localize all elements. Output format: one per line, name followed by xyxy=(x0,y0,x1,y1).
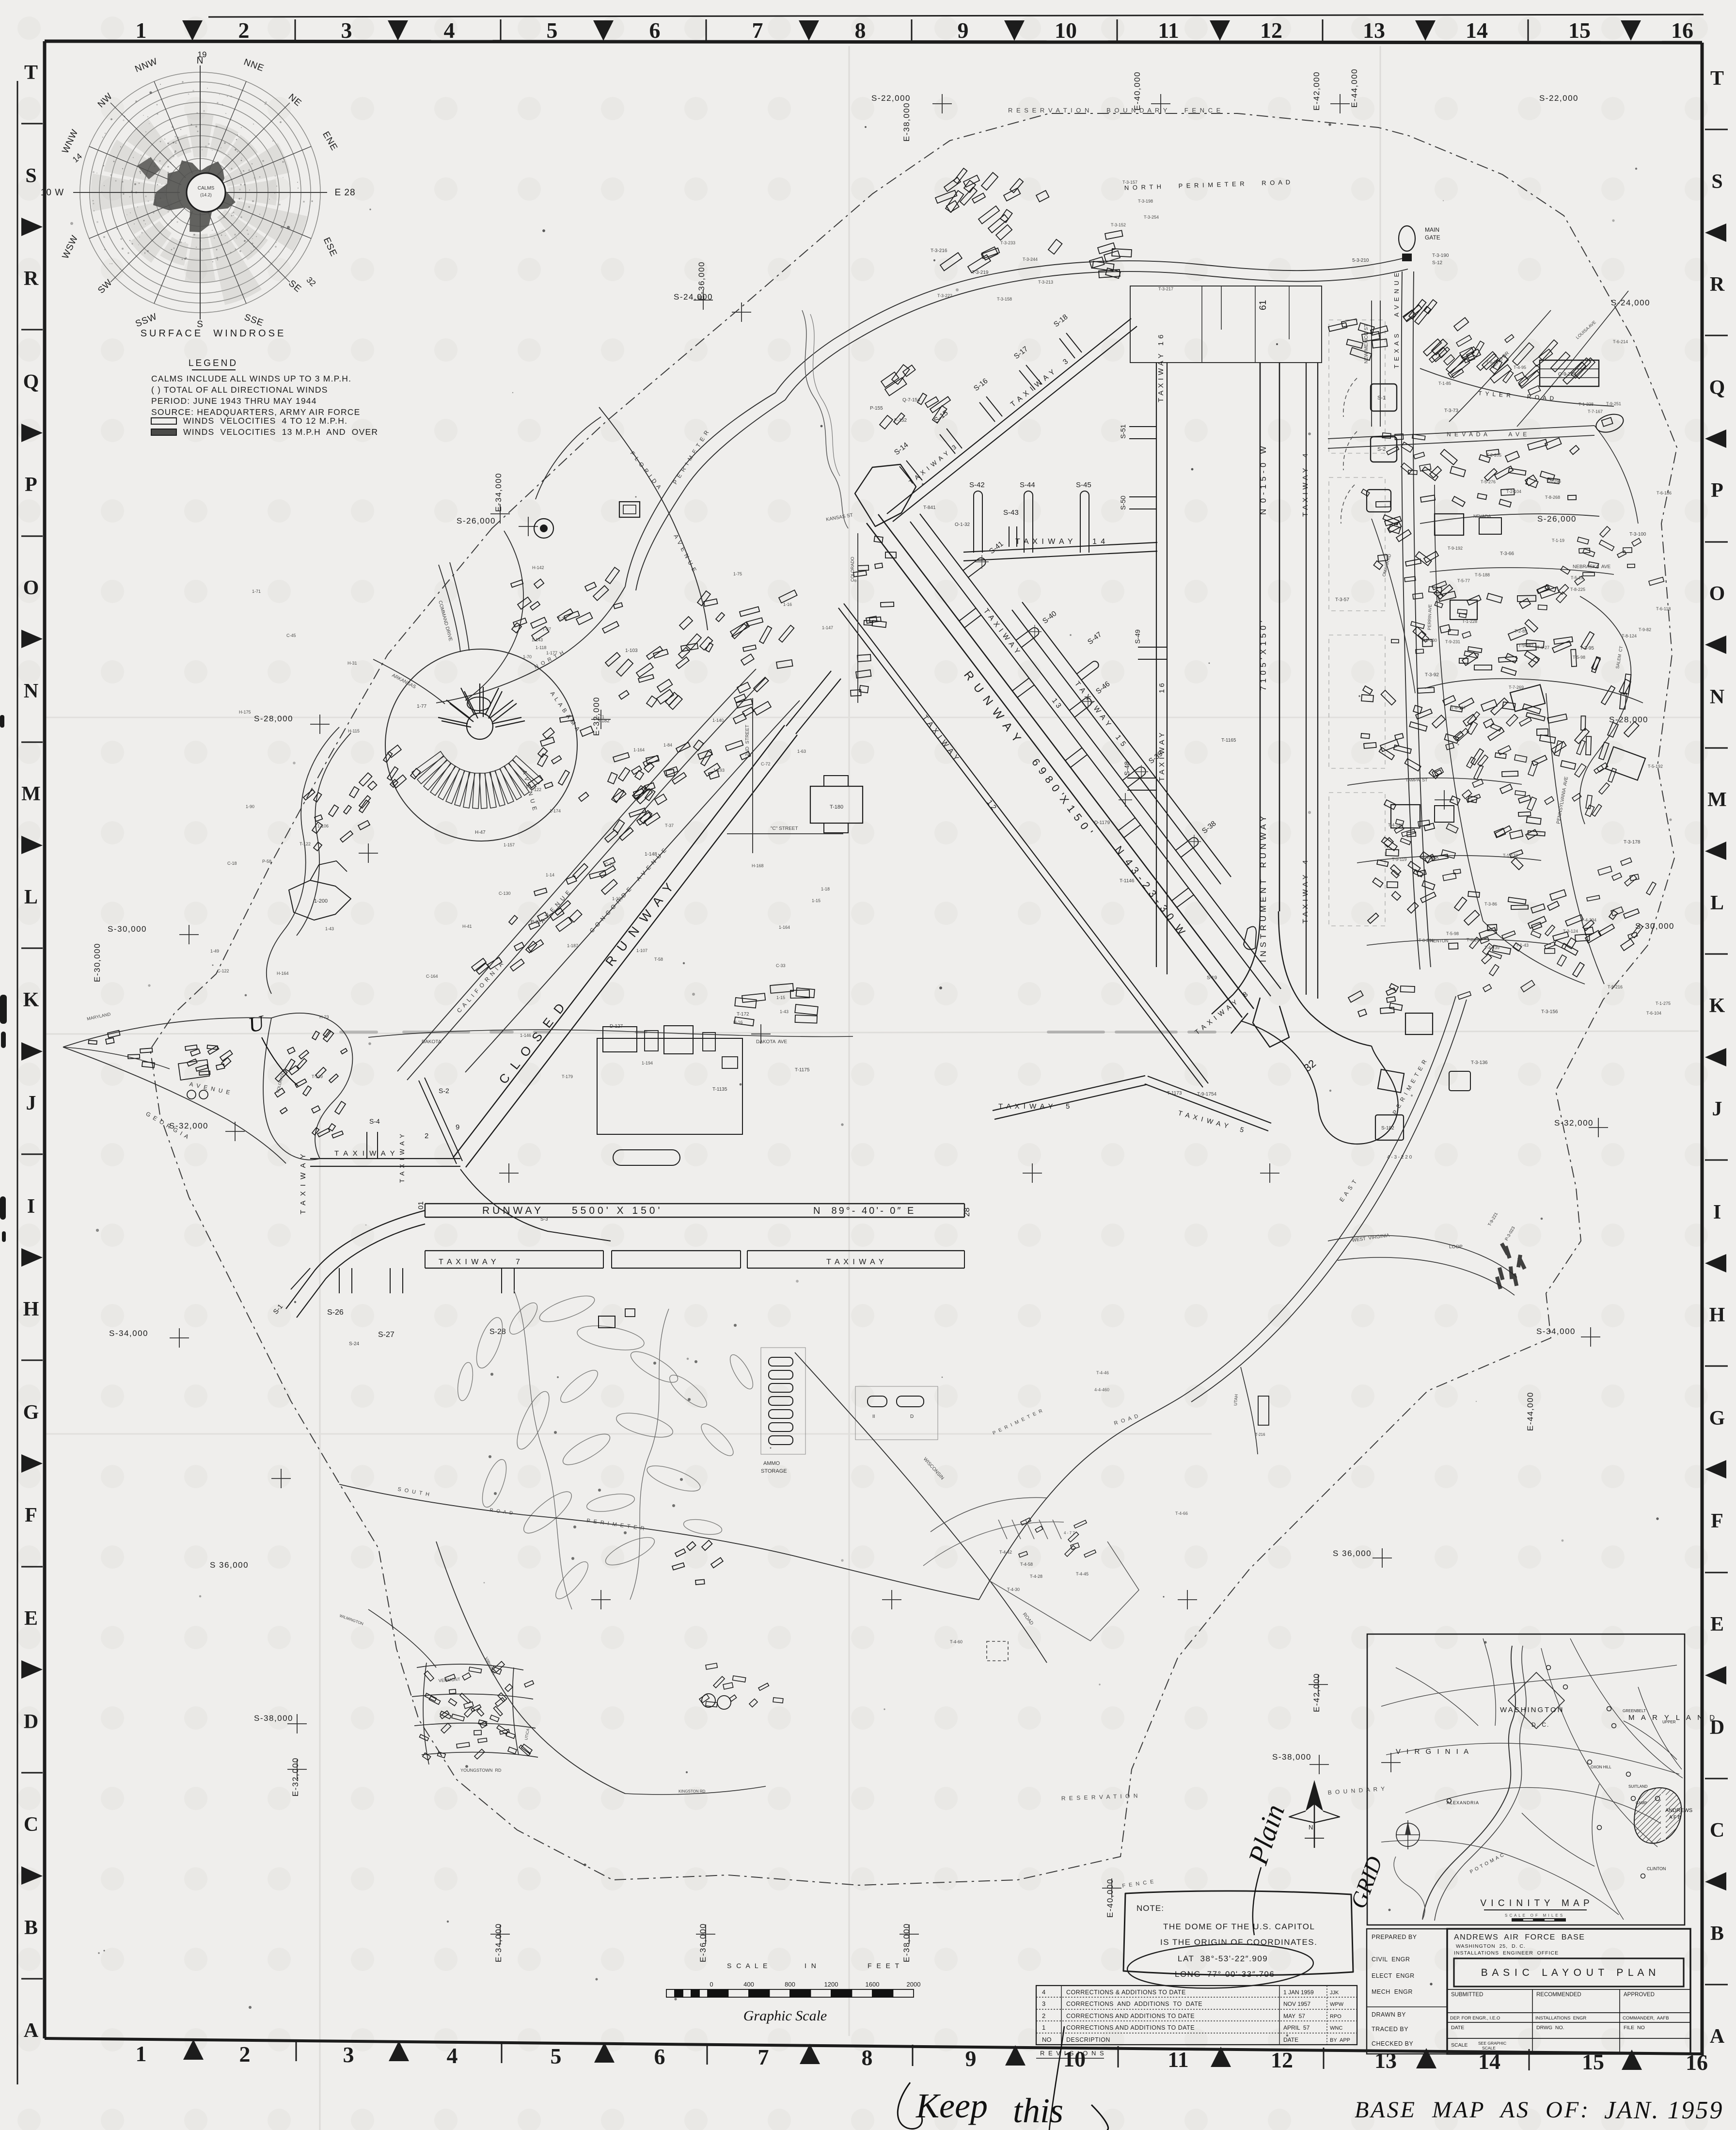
svg-text:T-74: T-74 xyxy=(557,617,567,622)
svg-text:H-41: H-41 xyxy=(462,924,472,929)
svg-text:11: 11 xyxy=(1158,18,1179,43)
svg-text:CORRECTIONS AND ADDITIONS T: CORRECTIONS AND ADDITIONS TO DATE xyxy=(1066,2001,1202,2007)
svg-text:H-115: H-115 xyxy=(348,729,360,733)
svg-text:T-4-60: T-4-60 xyxy=(950,1639,963,1644)
svg-text:T-3-100: T-3-100 xyxy=(1629,532,1646,537)
svg-text:14: 14 xyxy=(1478,2049,1500,2074)
svg-text:T-5-77: T-5-77 xyxy=(1457,578,1470,583)
svg-text:WINDS VELOCITIES 4 TO 12 M.P: WINDS VELOCITIES 4 TO 12 M.P.H. xyxy=(183,416,347,426)
svg-text:S-22,000: S-22,000 xyxy=(1539,94,1578,103)
svg-text:S-42: S-42 xyxy=(969,481,985,489)
svg-text:T-1173: T-1173 xyxy=(1167,1091,1182,1096)
svg-text:T-139: T-139 xyxy=(312,1074,323,1079)
svg-text:WNC: WNC xyxy=(1330,2025,1342,2031)
svg-text:JAN. 1959: JAN. 1959 xyxy=(1604,2097,1724,2124)
svg-text:S 36,000: S 36,000 xyxy=(210,1560,249,1570)
svg-text:S C A L E O F M I L E S: S C A L E O F M I L E S xyxy=(1505,1913,1563,1918)
svg-text:T A X I W A Y 4: T A X I W A Y 4 xyxy=(1301,453,1310,517)
svg-text:RUNWAY: RUNWAY xyxy=(482,1205,544,1216)
svg-text:INSTALLATIONS ENGINEER OFFIC: INSTALLATIONS ENGINEER OFFICE xyxy=(1454,1950,1559,1956)
svg-text:KINGSTON RD: KINGSTON RD xyxy=(679,1789,706,1794)
svg-text:E: E xyxy=(24,1607,38,1630)
svg-text:K: K xyxy=(23,989,39,1011)
svg-text:C-164: C-164 xyxy=(426,974,438,979)
svg-text:LEGEND: LEGEND xyxy=(189,358,238,368)
svg-text:S-3: S-3 xyxy=(540,1217,548,1222)
svg-text:T-4-30: T-4-30 xyxy=(1007,1587,1020,1592)
svg-text:T-122: T-122 xyxy=(300,842,311,846)
svg-text:1-164: 1-164 xyxy=(779,925,790,930)
svg-text:5: 5 xyxy=(551,2044,562,2068)
svg-text:S-26: S-26 xyxy=(327,1308,344,1317)
svg-text:3: 3 xyxy=(341,18,352,43)
svg-text:PERIOD: JUNE 1943 THRU MAY 194: PERIOD: JUNE 1943 THRU MAY 1944 xyxy=(151,396,317,406)
svg-text:T-180: T-180 xyxy=(830,804,843,810)
svg-text:T-122: T-122 xyxy=(530,787,541,792)
svg-text:T-4-58: T-4-58 xyxy=(1020,1562,1033,1567)
svg-text:S-22,000: S-22,000 xyxy=(871,94,911,103)
svg-text:SURFACE WINDROSE: SURFACE WINDROSE xyxy=(141,328,286,339)
svg-text:S-34,000: S-34,000 xyxy=(1536,1327,1576,1336)
svg-text:O: O xyxy=(1709,583,1725,605)
svg-text:J: J xyxy=(1712,1098,1722,1120)
svg-text:P-155: P-155 xyxy=(870,406,883,411)
svg-text:2: 2 xyxy=(425,1132,428,1140)
svg-text:T-4-28: T-4-28 xyxy=(1030,1574,1042,1579)
svg-text:4: 4 xyxy=(444,18,455,43)
svg-text:5-3-210: 5-3-210 xyxy=(1352,258,1369,263)
svg-text:S-38,000: S-38,000 xyxy=(254,1714,293,1723)
svg-text:400: 400 xyxy=(743,1981,754,1988)
svg-text:S-51: S-51 xyxy=(1119,424,1127,439)
svg-text:T-4-234: T-4-234 xyxy=(1581,918,1596,922)
svg-text:E-38,000: E-38,000 xyxy=(902,102,911,142)
svg-text:H-168: H-168 xyxy=(752,863,764,868)
svg-text:R: R xyxy=(24,268,39,290)
svg-text:T A X I W A Y 5: T A X I W A Y 5 xyxy=(998,1102,1071,1111)
svg-text:MAIN: MAIN xyxy=(1425,226,1439,233)
svg-text:1-147: 1-147 xyxy=(822,625,833,630)
svg-text:S-45: S-45 xyxy=(1076,481,1091,489)
svg-text:WASHINGTON: WASHINGTON xyxy=(1500,1706,1564,1714)
svg-text:N 0 - 1 5 - 0 W: N 0 - 1 5 - 0 W xyxy=(1259,445,1268,515)
svg-text:E-34,000: E-34,000 xyxy=(494,473,503,512)
svg-text:1-18: 1-18 xyxy=(821,887,830,891)
svg-text:H-164: H-164 xyxy=(277,971,289,976)
svg-text:61: 61 xyxy=(1258,300,1268,310)
svg-text:TRACED BY: TRACED BY xyxy=(1372,2026,1408,2033)
svg-text:N E V A D A A V E: N E V A D A A V E xyxy=(1447,431,1528,438)
svg-text:1-43: 1-43 xyxy=(325,926,334,931)
svg-text:14: 14 xyxy=(1466,18,1488,43)
svg-text:1-103: 1-103 xyxy=(625,648,638,653)
svg-text:CLINTON: CLINTON xyxy=(1647,1866,1666,1871)
svg-text:T-4-140: T-4-140 xyxy=(1388,823,1403,827)
svg-text:1-15: 1-15 xyxy=(812,898,821,903)
svg-text:V I C I N I T Y M A P: V I C I N I T Y M A P xyxy=(1480,1898,1590,1908)
svg-text:SEE GRAPHIC: SEE GRAPHIC xyxy=(1478,2041,1506,2046)
svg-text:T-9-231: T-9-231 xyxy=(1445,639,1460,644)
svg-text:T-3-158: T-3-158 xyxy=(997,297,1012,302)
svg-text:1: 1 xyxy=(136,18,147,43)
svg-text:ANDREWS: ANDREWS xyxy=(1665,1808,1692,1813)
svg-text:RECOMMENDED: RECOMMENDED xyxy=(1536,1992,1581,1998)
svg-text:CALMS INCLUDE ALL WINDS UP TO: CALMS INCLUDE ALL WINDS UP TO 3 M.P.H. xyxy=(151,374,351,383)
svg-text:H-47: H-47 xyxy=(475,830,486,835)
svg-text:T-6-167: T-6-167 xyxy=(1451,705,1466,710)
svg-text:T-841: T-841 xyxy=(923,505,936,510)
svg-text:1 JAN 1959: 1 JAN 1959 xyxy=(1283,1989,1314,1996)
svg-text:P: P xyxy=(25,474,37,496)
svg-text:L: L xyxy=(1710,892,1724,914)
svg-text:1200: 1200 xyxy=(824,1981,838,1988)
svg-text:E-40,000: E-40,000 xyxy=(1133,71,1142,111)
svg-text:13: 13 xyxy=(1374,2048,1397,2073)
svg-text:NOV 1957: NOV 1957 xyxy=(1283,2001,1310,2007)
svg-text:S-182: S-182 xyxy=(1381,1126,1394,1131)
svg-text:DAKOTA AVE: DAKOTA AVE xyxy=(756,1039,787,1045)
svg-text:19: 19 xyxy=(198,50,207,59)
svg-text:1-71: 1-71 xyxy=(252,589,261,594)
svg-text:10: 10 xyxy=(1055,18,1077,43)
svg-text:T-1-43: T-1-43 xyxy=(1516,943,1529,948)
svg-text:S-34,000: S-34,000 xyxy=(109,1329,148,1338)
svg-text:T-3-233: T-3-233 xyxy=(1000,240,1015,245)
svg-text:this: this xyxy=(1013,2091,1063,2130)
svg-text:I: I xyxy=(1713,1201,1721,1224)
svg-text:NO: NO xyxy=(1042,2036,1052,2043)
svg-text:T-6-104: T-6-104 xyxy=(1646,1011,1661,1016)
svg-text:1-118: 1-118 xyxy=(536,645,546,650)
svg-text:II: II xyxy=(872,1414,875,1419)
svg-text:8: 8 xyxy=(862,2045,873,2070)
svg-text:E-36,000: E-36,000 xyxy=(698,1923,708,1962)
svg-text:T-3-244: T-3-244 xyxy=(1023,257,1038,262)
svg-text:DATE: DATE xyxy=(1283,2036,1298,2043)
svg-text:T-8-244: T-8-244 xyxy=(1419,938,1434,943)
svg-text:T-4-247: T-4-247 xyxy=(1467,938,1482,942)
svg-text:9: 9 xyxy=(965,2046,977,2071)
svg-text:13: 13 xyxy=(1363,18,1385,43)
svg-text:E-36,000: E-36,000 xyxy=(697,261,706,301)
svg-text:T-9-119: T-9-119 xyxy=(1392,857,1406,862)
svg-text:S: S xyxy=(1711,171,1722,193)
svg-text:12: 12 xyxy=(1260,18,1282,43)
svg-text:C-45: C-45 xyxy=(286,633,296,638)
svg-text:APPROVED: APPROVED xyxy=(1624,1992,1655,1998)
svg-text:6: 6 xyxy=(654,2044,665,2069)
svg-text:T-6-118: T-6-118 xyxy=(1656,606,1671,611)
svg-text:COMMANDER, AAFB: COMMANDER, AAFB xyxy=(1623,2016,1669,2021)
svg-text:RPO: RPO xyxy=(1330,2014,1341,2019)
svg-text:C: C xyxy=(1710,1819,1724,1842)
svg-text:T-3-73: T-3-73 xyxy=(1444,408,1458,413)
svg-text:T-5-276: T-5-276 xyxy=(1481,479,1496,484)
svg-text:T-37: T-37 xyxy=(542,627,551,632)
svg-text:1-194: 1-194 xyxy=(642,1061,653,1065)
svg-text:T-3-136: T-3-136 xyxy=(1471,1060,1488,1065)
svg-text:2: 2 xyxy=(1042,2012,1045,2019)
svg-text:T-3-219: T-3-219 xyxy=(972,270,989,275)
svg-text:10 W: 10 W xyxy=(41,188,64,198)
svg-text:1-70: 1-70 xyxy=(523,654,532,659)
svg-text:T-9-82: T-9-82 xyxy=(1639,627,1651,632)
svg-text:E-32,000: E-32,000 xyxy=(291,1757,300,1796)
svg-text:T-2-89: T-2-89 xyxy=(1515,629,1527,634)
svg-text:7: 7 xyxy=(752,18,763,43)
svg-text:S-30,000: S-30,000 xyxy=(108,924,147,934)
svg-text:E-30,000: E-30,000 xyxy=(93,943,102,982)
svg-text:T-1-19: T-1-19 xyxy=(1552,538,1564,543)
svg-text:T-5-98: T-5-98 xyxy=(1573,655,1585,660)
svg-text:S-48: S-48 xyxy=(1123,761,1131,776)
svg-text:CALMS: CALMS xyxy=(198,186,215,191)
svg-text:T-3-198: T-3-198 xyxy=(1138,199,1153,204)
svg-text:T A X I W A Y 1 6: T A X I W A Y 1 6 xyxy=(1157,334,1165,402)
svg-text:H-23: H-23 xyxy=(319,1015,329,1019)
svg-text:T-37: T-37 xyxy=(665,823,674,828)
svg-text:1-49: 1-49 xyxy=(210,949,219,954)
svg-text:T-3-95: T-3-95 xyxy=(1580,646,1594,651)
svg-text:IS THE ORIGIN OF COORDINATES.: IS THE ORIGIN OF COORDINATES. xyxy=(1160,1938,1317,1947)
svg-text:T-3-254: T-3-254 xyxy=(1144,215,1159,220)
svg-text:T-1-228: T-1-228 xyxy=(1578,402,1594,407)
svg-text:S-26,000: S-26,000 xyxy=(1537,514,1577,524)
svg-text:T-1165: T-1165 xyxy=(1221,738,1236,743)
svg-text:UTAH: UTAH xyxy=(1233,1394,1239,1406)
svg-text:PREPARED BY: PREPARED BY xyxy=(1372,1934,1417,1940)
svg-text:S-26,000: S-26,000 xyxy=(457,516,496,525)
svg-text:SOURCE: HEADQUARTERS, ARMY AIR: SOURCE: HEADQUARTERS, ARMY AIR FORCE xyxy=(151,407,361,417)
svg-text:B: B xyxy=(24,1917,38,1939)
svg-text:K: K xyxy=(1709,995,1725,1017)
svg-text:T-4-95: T-4-95 xyxy=(1514,365,1526,370)
svg-text:P-58: P-58 xyxy=(262,859,271,864)
svg-text:Q: Q xyxy=(1709,377,1725,399)
svg-text:F E E T: F E E T xyxy=(868,1962,900,1970)
svg-text:S-49: S-49 xyxy=(1134,629,1141,644)
svg-text:1-146: 1-146 xyxy=(520,1033,531,1038)
svg-text:S-19: S-19 xyxy=(1207,975,1217,981)
svg-text:T-5-192: T-5-192 xyxy=(1648,764,1663,769)
svg-text:4 - 3 - 2 2 0: 4 - 3 - 2 2 0 xyxy=(1387,1155,1412,1160)
svg-text:COLORADO: COLORADO xyxy=(850,556,855,582)
svg-text:T-1-172: T-1-172 xyxy=(1503,853,1518,858)
svg-text:1-107: 1-107 xyxy=(636,948,647,953)
svg-text:T-5-188: T-5-188 xyxy=(1475,572,1490,577)
svg-text:S C A L E: S C A L E xyxy=(727,1962,769,1970)
svg-text:H: H xyxy=(1709,1304,1725,1326)
svg-text:T-172: T-172 xyxy=(737,1012,749,1017)
svg-text:S: S xyxy=(25,165,36,187)
svg-text:INSTALLATIONS ENGR: INSTALLATIONS ENGR xyxy=(1535,2016,1586,2021)
svg-text:T A X I W A Y: T A X I W A Y xyxy=(398,1133,406,1183)
svg-text:E-42,000: E-42,000 xyxy=(1312,71,1321,111)
svg-text:D: D xyxy=(910,1414,914,1419)
svg-text:T-2-130: T-2-130 xyxy=(1422,638,1437,643)
svg-text:1: 1 xyxy=(1042,2024,1045,2031)
svg-text:16: 16 xyxy=(1671,18,1693,43)
svg-text:S-24,000: S-24,000 xyxy=(1611,298,1650,307)
svg-text:T-5-296: T-5-296 xyxy=(1546,479,1561,484)
svg-text:WINDS VELOCITIES 13 M.P.H A: WINDS VELOCITIES 13 M.P.H AND OVER xyxy=(183,427,378,437)
svg-text:B A S I C L A Y O U T P L: B A S I C L A Y O U T P L A N xyxy=(1481,1967,1657,1978)
svg-text:T-3-57: T-3-57 xyxy=(1335,597,1349,603)
svg-text:E-34,000: E-34,000 xyxy=(494,1923,503,1962)
svg-text:9: 9 xyxy=(958,18,969,43)
svg-text:ANDREWS AIR FORCE BASE: ANDREWS AIR FORCE BASE xyxy=(1454,1933,1585,1941)
svg-text:T-3-217: T-3-217 xyxy=(1158,286,1173,291)
svg-text:M: M xyxy=(1707,789,1727,811)
svg-text:N: N xyxy=(24,680,38,702)
svg-text:GREENBELT: GREENBELT xyxy=(1623,1709,1646,1713)
svg-text:D. C.: D. C. xyxy=(1531,1721,1549,1728)
svg-text:CORRECTIONS AND ADDITIONS TO D: CORRECTIONS AND ADDITIONS TO DATE xyxy=(1066,2024,1195,2031)
svg-text:4-4-460: 4-4-460 xyxy=(1094,1387,1109,1392)
svg-text:T-7-269: T-7-269 xyxy=(1509,685,1524,690)
svg-text:1-187: 1-187 xyxy=(567,943,578,948)
svg-text:SCALE: SCALE xyxy=(1482,2046,1496,2051)
svg-text:P-22: P-22 xyxy=(531,920,541,925)
svg-text:O-1-32: O-1-32 xyxy=(955,522,970,527)
svg-text:C-18: C-18 xyxy=(227,861,237,866)
svg-text:T-9-251: T-9-251 xyxy=(1606,401,1621,406)
svg-text:STORAGE: STORAGE xyxy=(761,1468,787,1474)
svg-text:N: N xyxy=(1309,1824,1313,1831)
svg-text:T A X I W A Y: T A X I W A Y xyxy=(1158,732,1166,781)
svg-text:T-1-85: T-1-85 xyxy=(1438,381,1451,386)
svg-text:C-122: C-122 xyxy=(217,969,229,973)
svg-text:T-4-46: T-4-46 xyxy=(1096,1370,1109,1375)
svg-text:1-200: 1-200 xyxy=(314,898,328,904)
svg-text:T-2-104: T-2-104 xyxy=(1506,489,1521,494)
svg-text:OXON HILL: OXON HILL xyxy=(1591,1765,1611,1769)
svg-text:T-8-124: T-8-124 xyxy=(1622,634,1637,638)
svg-text:7 1 0 5 ' X 1 5 0 ': 7 1 0 5 ' X 1 5 0 ' xyxy=(1259,620,1268,691)
svg-text:UPPER: UPPER xyxy=(1662,1720,1676,1724)
svg-text:T-3-190: T-3-190 xyxy=(1432,253,1449,258)
svg-text:T: T xyxy=(1710,67,1724,90)
svg-text:T-1-228: T-1-228 xyxy=(1462,619,1477,624)
svg-text:2000: 2000 xyxy=(907,1981,921,1988)
svg-text:1-174: 1-174 xyxy=(550,809,561,813)
svg-text:N: N xyxy=(1710,686,1724,708)
svg-text:4: 4 xyxy=(447,2043,458,2068)
svg-text:G: G xyxy=(1709,1407,1725,1430)
svg-text:O: O xyxy=(23,577,39,599)
svg-text:LONG 77°-00'-33″.706: LONG 77°-00'-33″.706 xyxy=(1175,1970,1275,1979)
svg-text:1-14: 1-14 xyxy=(546,873,554,877)
svg-text:Q: Q xyxy=(23,371,39,393)
svg-text:L: L xyxy=(24,886,38,908)
svg-text:D-1179: D-1179 xyxy=(1094,820,1110,826)
svg-text:2: 2 xyxy=(239,2042,251,2066)
svg-text:H: H xyxy=(23,1298,39,1320)
svg-text:WPW: WPW xyxy=(1330,2002,1344,2007)
svg-text:12: 12 xyxy=(1271,2048,1293,2072)
svg-text:E-42,000: E-42,000 xyxy=(1312,1673,1321,1712)
svg-text:1-71: 1-71 xyxy=(596,715,604,719)
svg-text:G: G xyxy=(23,1401,39,1424)
svg-text:T A X I W A Y: T A X I W A Y xyxy=(334,1149,396,1158)
svg-text:I N S T R U M E N T R U N W: I N S T R U M E N T R U N W A Y xyxy=(1259,815,1268,962)
svg-text:THE DOME OF THE U.S. CAPITOL: THE DOME OF THE U.S. CAPITOL xyxy=(1163,1922,1315,1931)
svg-text:(14.2): (14.2) xyxy=(200,192,212,197)
svg-text:1-148: 1-148 xyxy=(645,852,657,857)
svg-text:01: 01 xyxy=(417,1201,425,1209)
svg-text:1-63: 1-63 xyxy=(797,749,806,754)
svg-text:Keep: Keep xyxy=(915,2086,988,2125)
svg-text:CORRECTIONS & ADDITIONS TO DAT: CORRECTIONS & ADDITIONS TO DATE xyxy=(1066,1989,1186,1996)
svg-text:LOOP: LOOP xyxy=(1449,1244,1463,1250)
svg-text:H-142: H-142 xyxy=(532,565,544,570)
svg-text:1-106: 1-106 xyxy=(317,824,329,828)
svg-text:F-152: F-152 xyxy=(894,418,907,423)
svg-text:DRAWN BY: DRAWN BY xyxy=(1372,2011,1406,2018)
svg-text:DEP. FOR ENGR., I.E.O: DEP. FOR ENGR., I.E.O xyxy=(1450,2016,1500,2021)
svg-text:S-12: S-12 xyxy=(1432,260,1443,266)
svg-text:F: F xyxy=(1711,1510,1723,1532)
svg-text:JJK: JJK xyxy=(1330,1990,1339,1996)
svg-text:S-2: S-2 xyxy=(439,1087,449,1095)
svg-text:0: 0 xyxy=(710,1981,713,1988)
svg-text:T-9-192: T-9-192 xyxy=(1448,546,1463,551)
svg-text:28: 28 xyxy=(962,1208,971,1217)
svg-text:T-8-268: T-8-268 xyxy=(1545,495,1560,500)
svg-text:S-38,000: S-38,000 xyxy=(1272,1752,1311,1762)
svg-text:S-50: S-50 xyxy=(1119,495,1127,510)
svg-text:T-3-124: T-3-124 xyxy=(1563,929,1578,934)
svg-text:5: 5 xyxy=(547,18,558,43)
svg-text:S-32,000: S-32,000 xyxy=(1554,1118,1594,1128)
svg-text:WASHINGTON 25, D. C.: WASHINGTON 25, D. C. xyxy=(1456,1943,1526,1949)
svg-text:R: R xyxy=(1710,273,1725,296)
svg-text:CHECKED BY: CHECKED BY xyxy=(1372,2040,1413,2047)
svg-text:NEW MEXICO ST: NEW MEXICO ST xyxy=(1364,324,1369,364)
svg-text:C: C xyxy=(24,1813,38,1836)
svg-text:APRIL 57: APRIL 57 xyxy=(1283,2024,1310,2031)
svg-text:CORRECTIONS AND ADDITIONS TO D: CORRECTIONS AND ADDITIONS TO DATE xyxy=(1066,2013,1195,2019)
svg-text:NOTE:: NOTE: xyxy=(1136,1904,1164,1913)
svg-text:T A X I W A Y 7: T A X I W A Y 7 xyxy=(439,1258,521,1266)
svg-text:1 6: 1 6 xyxy=(1158,683,1166,693)
svg-text:S-28,000: S-28,000 xyxy=(254,714,293,723)
svg-text:"C" STREET: "C" STREET xyxy=(771,826,798,831)
svg-text:YOUNGSTOWN RD: YOUNGSTOWN RD xyxy=(460,1768,502,1773)
svg-text:T-4-66: T-4-66 xyxy=(1175,1511,1188,1516)
svg-text:T-8-225: T-8-225 xyxy=(1570,587,1585,592)
svg-text:1-75: 1-75 xyxy=(733,572,742,576)
svg-text:T-3-66: T-3-66 xyxy=(1500,551,1514,556)
svg-text:P: P xyxy=(1711,479,1723,502)
svg-text:E-44,000: E-44,000 xyxy=(1350,68,1359,108)
svg-text:T: T xyxy=(24,62,38,84)
svg-text:C-72: C-72 xyxy=(761,762,771,766)
svg-text:DAKOTA: DAKOTA xyxy=(422,1039,442,1045)
svg-text:( ) TOTAL OF ALL DIRECTIONAL W: ( ) TOTAL OF ALL DIRECTIONAL WINDS xyxy=(151,385,328,395)
svg-text:T-2-205: T-2-205 xyxy=(1486,453,1501,458)
svg-text:Q-7-154: Q-7-154 xyxy=(902,397,920,403)
svg-text:N 89°- 40'- 0″ E: N 89°- 40'- 0″ E xyxy=(813,1206,915,1216)
svg-text:T-7-167: T-7-167 xyxy=(1588,409,1603,414)
svg-text:SCALE: SCALE xyxy=(1451,2042,1468,2048)
svg-text:R E S E R V A T I O N B O: R E S E R V A T I O N B O U N D A R Y F … xyxy=(1008,107,1221,114)
svg-text:3: 3 xyxy=(1042,2000,1045,2007)
svg-text:DATE: DATE xyxy=(1451,2025,1464,2031)
svg-text:1-164: 1-164 xyxy=(633,747,645,752)
svg-text:1: 1 xyxy=(136,2041,147,2066)
svg-text:1-143: 1-143 xyxy=(532,637,543,642)
